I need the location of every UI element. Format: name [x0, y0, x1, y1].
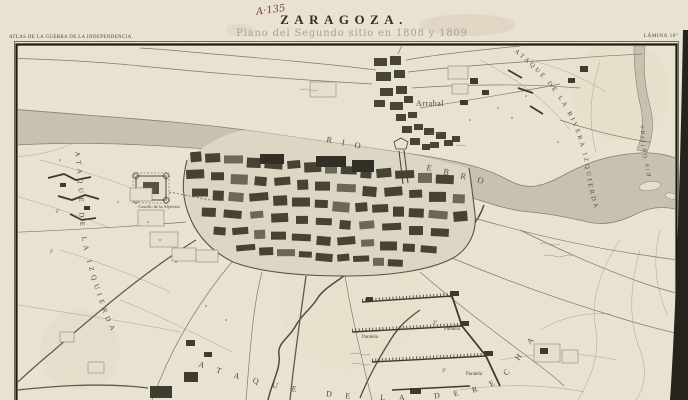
map-sheet: A·135 ZARAGOZA. Plano del Segundo sitio … — [0, 0, 688, 400]
zaragoza-siege-map: A·135 ZARAGOZA. Plano del Segundo sitio … — [0, 0, 688, 400]
paper-grain — [0, 0, 688, 400]
